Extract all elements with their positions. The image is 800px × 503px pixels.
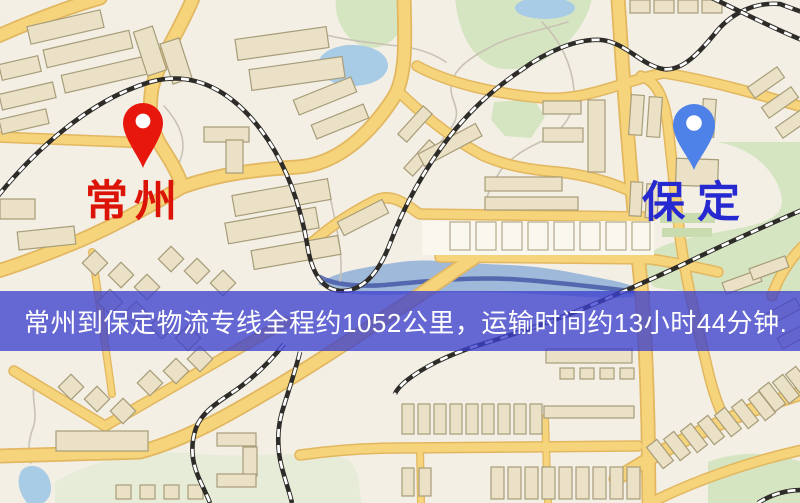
map-screenshot: 常州 保定 常州到保定物流专线全程约1052公里，运输时间约13小时44分钟. (0, 0, 800, 503)
origin-label: 常州 (85, 177, 183, 227)
route-info-banner: 常州到保定物流专线全程约1052公里，运输时间约13小时44分钟. (0, 291, 800, 351)
map-canvas[interactable]: 常州 保定 (0, 0, 800, 503)
origin-pin-icon[interactable] (123, 103, 163, 168)
destination-label: 保定 (642, 178, 752, 228)
route-info-text: 常州到保定物流专线全程约1052公里，运输时间约13小时44分钟. (24, 303, 787, 340)
